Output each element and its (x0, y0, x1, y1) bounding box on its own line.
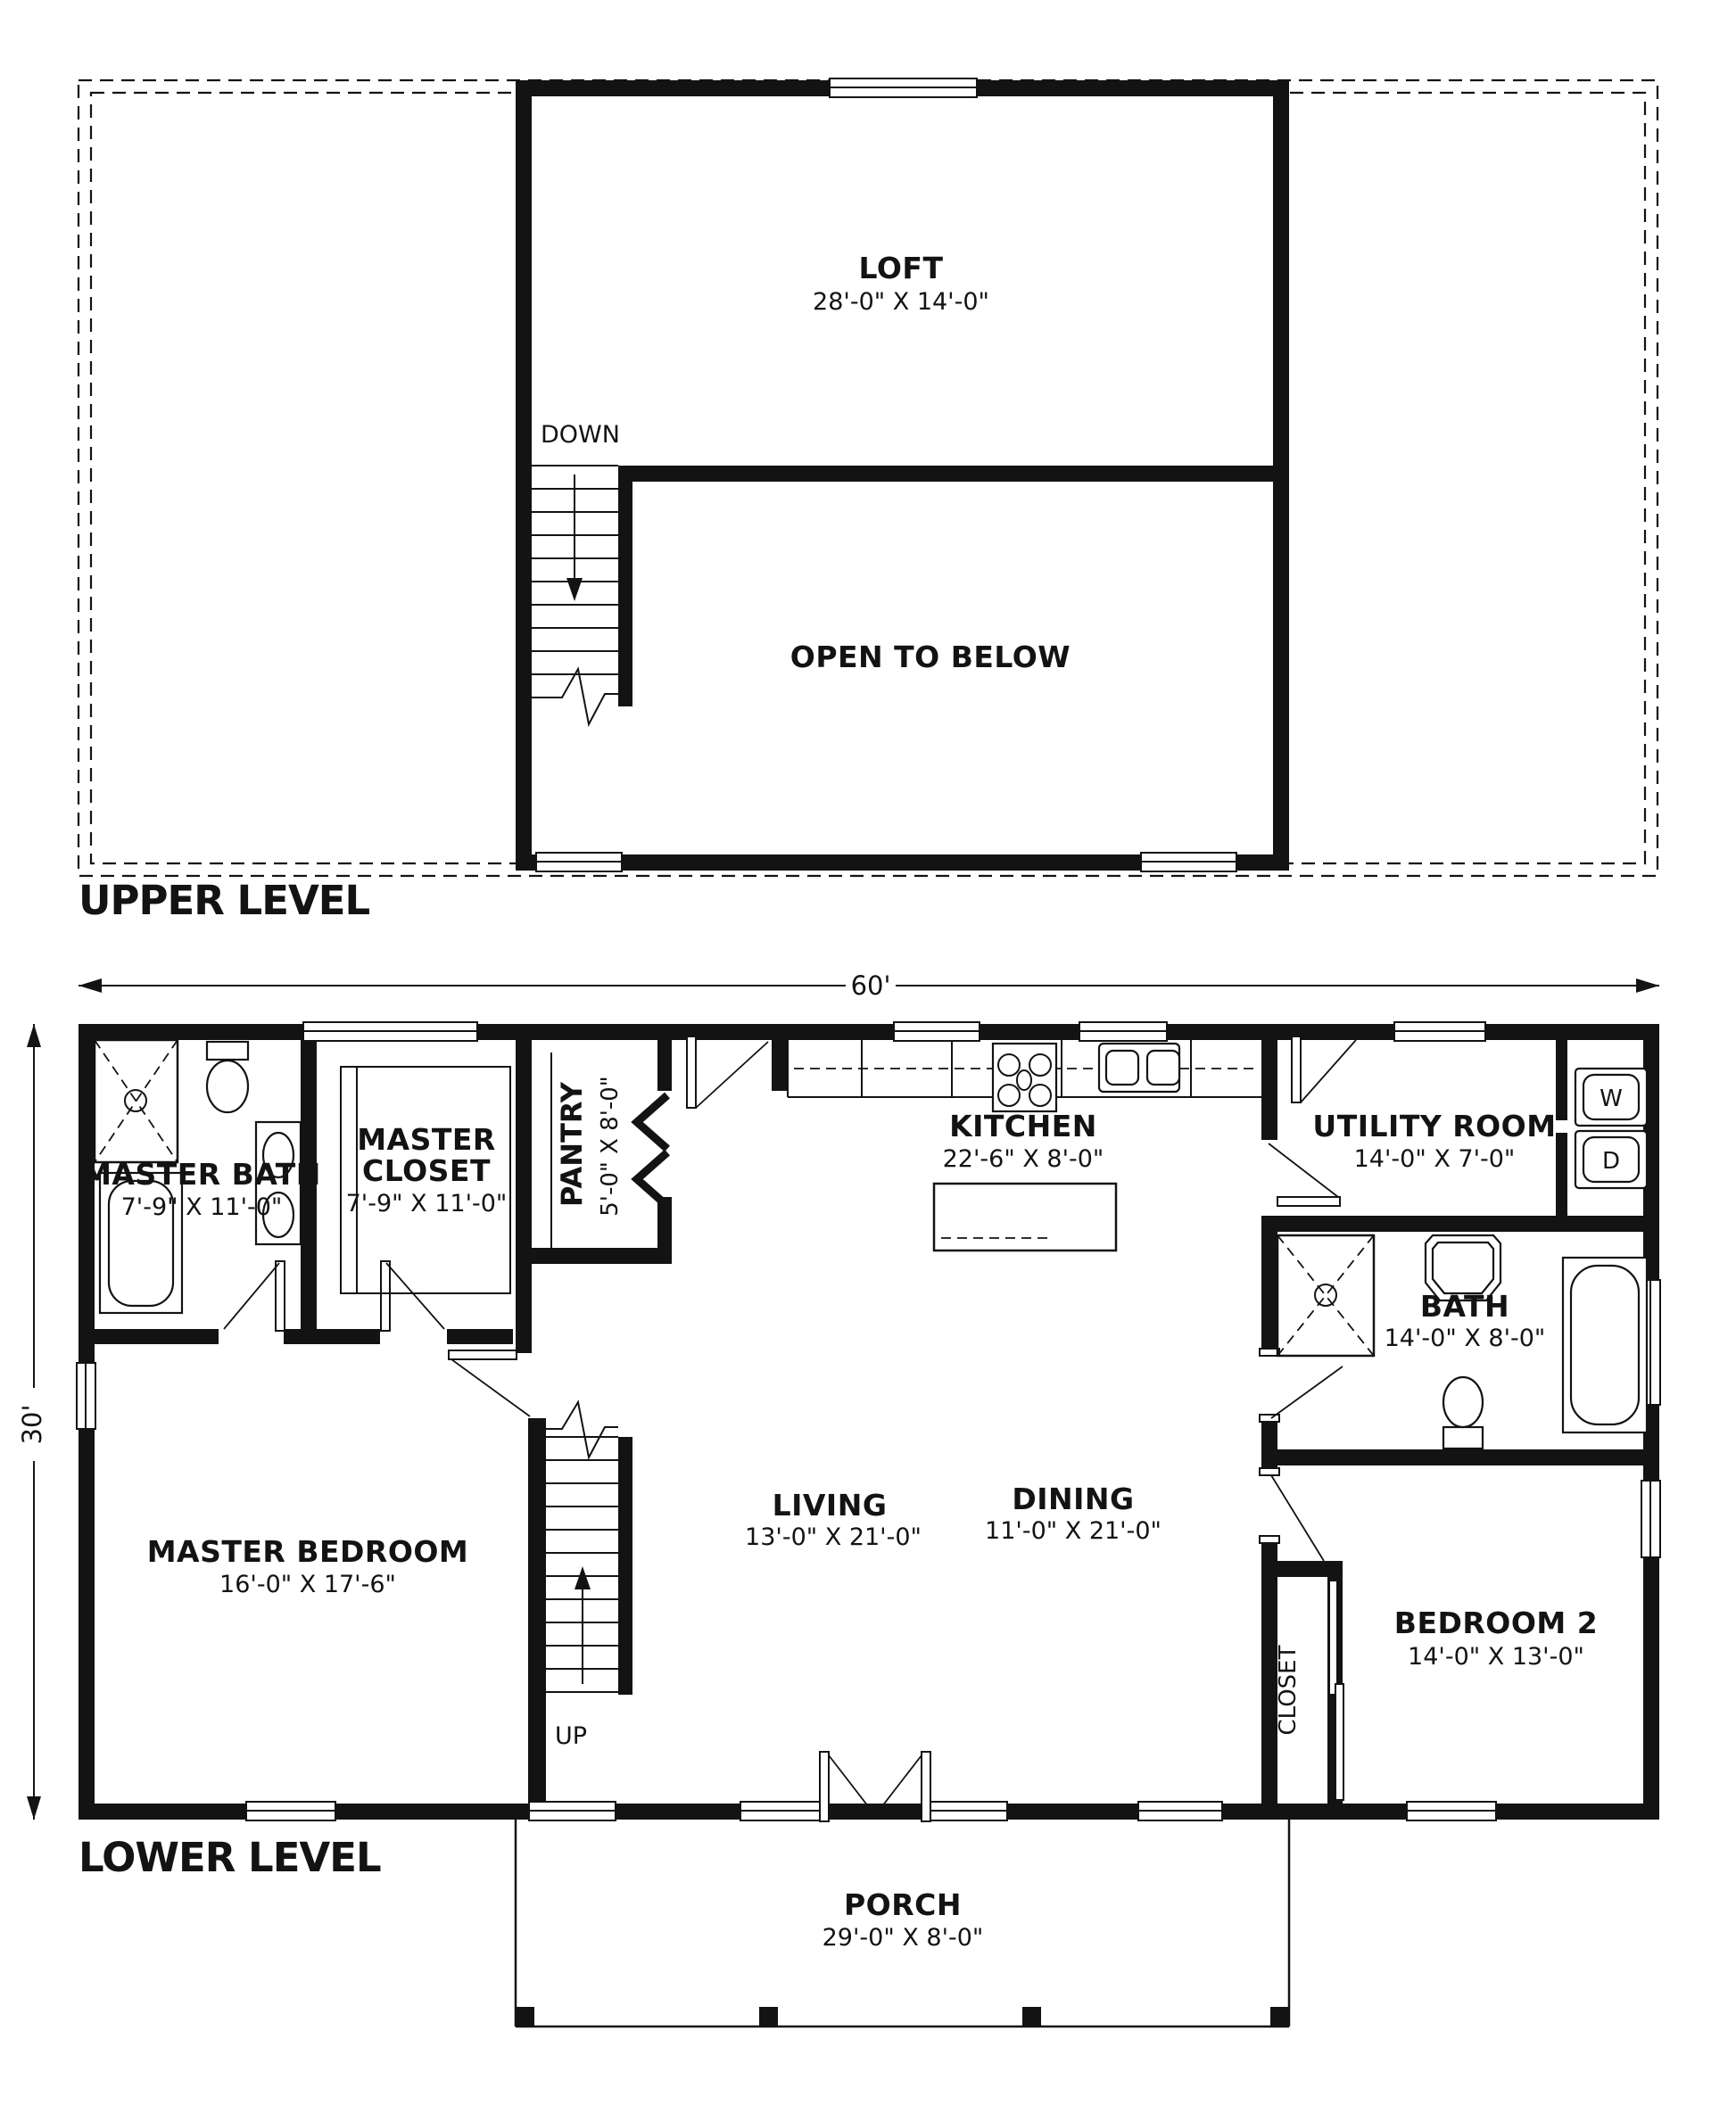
upper-stairwell-wall (618, 466, 632, 706)
floor-plan-drawing: DOWN LOFT 28'-0" X 14'-0" OPEN TO BELOW … (0, 0, 1736, 2105)
room-pantry-dims: 5'-0" X 8'-0" (597, 1076, 624, 1217)
shower-icon (95, 1040, 178, 1162)
wall-closet2-top (1277, 1561, 1343, 1577)
room-master-closet-dims: 7'-9" X 11'-0" (346, 1190, 508, 1218)
lower-level-title: LOWER LEVEL (79, 1834, 381, 1881)
window (740, 1802, 823, 1820)
window (830, 78, 977, 97)
wall-entry-stub (772, 1040, 788, 1091)
room-kitchen: KITCHEN 22'-6" X 8'-0" (943, 1109, 1104, 1173)
room-kitchen-label: KITCHEN (949, 1109, 1097, 1143)
window (1407, 1802, 1496, 1820)
wall-dining-east (1261, 1232, 1277, 1354)
room-loft-dims: 28'-0" X 14'-0" (813, 288, 989, 316)
room-porch-label: PORCH (844, 1887, 962, 1922)
stairs-down (532, 466, 632, 724)
wall-bath-row (284, 1329, 380, 1344)
window (1394, 1022, 1485, 1041)
open-to-below-label: OPEN TO BELOW (790, 640, 1071, 674)
room-pantry-label: PANTRY (555, 1081, 589, 1207)
door-pantry-bifold (637, 1095, 667, 1206)
room-living-dims: 13'-0" X 21'-0" (745, 1523, 922, 1551)
svg-text:D: D (1602, 1148, 1620, 1175)
porch-post (1022, 2007, 1041, 2027)
upper-level-title: UPPER LEVEL (79, 877, 370, 924)
room-bath-label: BATH (1420, 1289, 1509, 1324)
dimension-width: 60' (79, 970, 1659, 1001)
room-master-bedroom: MASTER BEDROOM 16'-0" X 17'-6" (147, 1534, 469, 1598)
window (1079, 1022, 1167, 1041)
window (930, 1802, 1007, 1820)
svg-text:W: W (1600, 1086, 1623, 1112)
wall-pantry-bottom (516, 1248, 672, 1264)
porch-post (759, 2007, 778, 2027)
wall-stair-right (618, 1437, 632, 1695)
wall-wd-niche (1556, 1133, 1567, 1216)
porch-post (1270, 2007, 1289, 2027)
door-utility-interior (1269, 1143, 1340, 1206)
room-bedroom2-dims: 14'-0" X 13'-0" (1408, 1643, 1584, 1671)
room-bath: BATH 14'-0" X 8'-0" (1385, 1289, 1546, 1352)
bathtub-icon (1563, 1258, 1647, 1432)
room-bath-dims: 14'-0" X 8'-0" (1385, 1325, 1546, 1352)
dryer-icon: D (1575, 1131, 1647, 1188)
window (1641, 1481, 1660, 1557)
wall-pantry-right (657, 1040, 672, 1091)
window (529, 1802, 616, 1820)
room-living-label: LIVING (773, 1488, 888, 1523)
room-loft: LOFT 28'-0" X 14'-0" (813, 251, 989, 316)
room-bedroom2: BEDROOM 2 14'-0" X 13'-0" (1394, 1606, 1598, 1671)
floor-plan-page: DOWN LOFT 28'-0" X 14'-0" OPEN TO BELOW … (0, 0, 1736, 2105)
room-pantry: PANTRY 5'-0" X 8'-0" (555, 1076, 624, 1217)
door-bath (1260, 1349, 1343, 1422)
upper-level-plan: DOWN LOFT 28'-0" X 14'-0" OPEN TO BELOW … (79, 78, 1657, 924)
toilet-icon (207, 1042, 248, 1112)
upper-wall-divider (618, 466, 1273, 482)
room-closet2-label: CLOSET (1275, 1645, 1302, 1735)
room-utility-label: UTILITY ROOM (1312, 1109, 1556, 1143)
wall-masterbedroom-right (528, 1418, 546, 1804)
room-master-closet: MASTER CLOSET 7'-9" X 11'-0" (346, 1122, 508, 1218)
room-master-bedroom-label: MASTER BEDROOM (147, 1534, 469, 1569)
stove-icon (993, 1044, 1056, 1111)
room-master-bath-label: MASTER BATH (82, 1157, 321, 1192)
room-dining: DINING 11'-0" X 21'-0" (985, 1482, 1161, 1545)
room-utility: UTILITY ROOM 14'-0" X 7'-0" (1312, 1109, 1556, 1173)
room-dining-dims: 11'-0" X 21'-0" (985, 1517, 1161, 1545)
window (77, 1363, 95, 1429)
door-master-bath (224, 1261, 285, 1331)
wall-closet-pantry (516, 1040, 532, 1353)
room-master-closet-label2: CLOSET (362, 1153, 491, 1188)
room-living: LIVING 13'-0" X 21'-0" (745, 1488, 922, 1551)
shower-icon (1277, 1235, 1374, 1356)
dimension-depth-text: 30' (17, 1405, 47, 1445)
room-porch-dims: 29'-0" X 8'-0" (823, 1924, 984, 1952)
window (536, 853, 622, 871)
window (246, 1802, 335, 1820)
wall-bath-row (95, 1329, 219, 1344)
wall-utility-bath (1261, 1216, 1659, 1232)
room-bedroom2-label: BEDROOM 2 (1394, 1606, 1598, 1640)
stairs-up-label: UP (555, 1722, 587, 1750)
door-master-closet (381, 1261, 444, 1331)
room-master-closet-label1: MASTER (357, 1122, 496, 1157)
room-master-bath-dims: 7'-9" X 11'-0" (121, 1193, 283, 1221)
wall-kitchen-right (1261, 1040, 1277, 1140)
room-dining-label: DINING (1012, 1482, 1134, 1516)
upper-wall-right (1273, 80, 1289, 871)
upper-wall-left (516, 80, 532, 871)
wall-bath-bottom (1261, 1449, 1659, 1465)
door-master-bedroom (449, 1350, 530, 1416)
window (303, 1022, 477, 1041)
kitchen-island (934, 1184, 1116, 1251)
wall-wd-niche (1556, 1040, 1567, 1120)
door-utility-exterior (1292, 1036, 1356, 1102)
porch-outline (516, 1820, 1289, 2027)
lower-level-plan: 60' 30' (17, 970, 1660, 2027)
wall-bath-row (447, 1329, 513, 1344)
room-loft-label: LOFT (859, 251, 944, 285)
window (1141, 853, 1236, 871)
porch-post (516, 2007, 534, 2027)
window (1138, 1802, 1222, 1820)
washer-icon: W (1575, 1069, 1647, 1126)
dimension-depth: 30' (17, 1024, 47, 1820)
room-master-bedroom-dims: 16'-0" X 17'-6" (219, 1571, 396, 1598)
kitchen-sink-icon (1099, 1044, 1179, 1092)
window (894, 1022, 980, 1041)
toilet-icon (1443, 1377, 1483, 1449)
dimension-width-text: 60' (851, 970, 891, 1001)
door-front-entry (687, 1036, 768, 1108)
stairs-down-label: DOWN (541, 421, 620, 449)
stair-break-line (532, 669, 632, 724)
room-porch: PORCH 29'-0" X 8'-0" (823, 1887, 984, 1952)
room-utility-dims: 14'-0" X 7'-0" (1354, 1145, 1516, 1173)
room-kitchen-dims: 22'-6" X 8'-0" (943, 1145, 1104, 1173)
